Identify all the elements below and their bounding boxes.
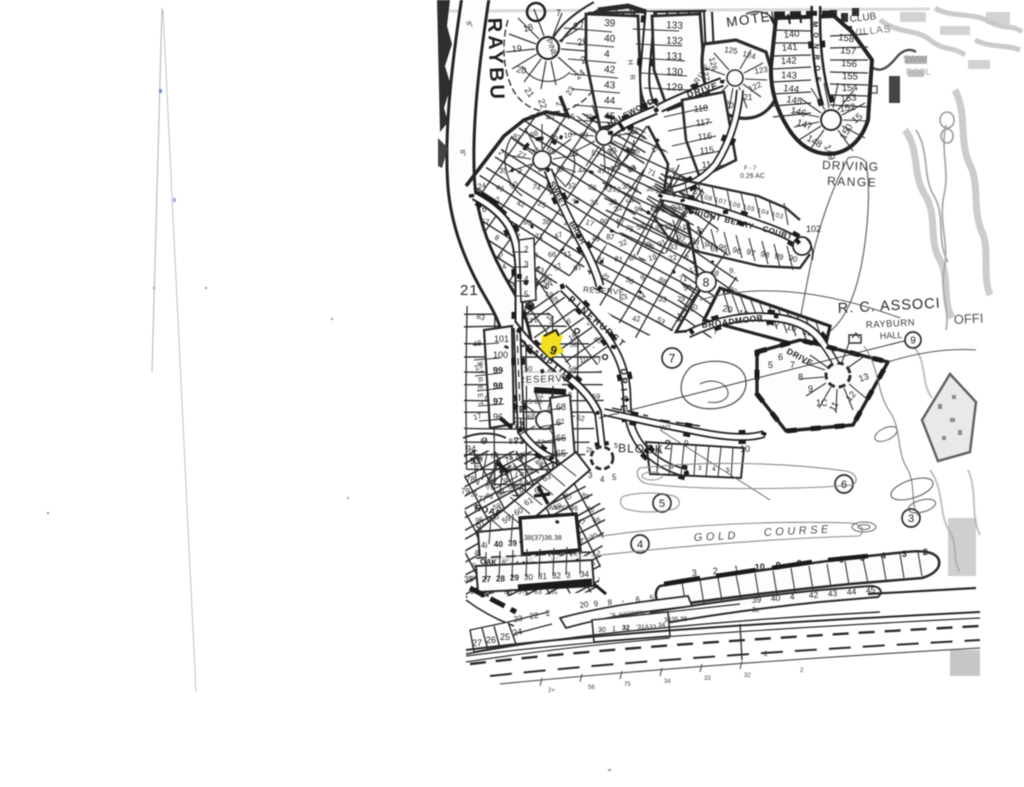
svg-text:9: 9 [482,436,487,446]
svg-text:F - 7: F - 7 [744,166,757,172]
svg-text:118: 118 [693,103,708,114]
svg-text:155: 155 [842,71,858,83]
svg-text:4: 4 [637,539,643,551]
svg-text:WATER: WATER [548,505,571,512]
svg-text:24: 24 [512,626,524,638]
svg-text:46: 46 [570,505,579,513]
svg-text:116: 116 [697,131,712,142]
svg-text:158: 158 [838,32,855,45]
svg-text:152: 152 [839,102,856,115]
svg-text:71: 71 [514,404,524,414]
svg-text:10: 10 [563,130,572,140]
svg-text:78: 78 [466,475,475,484]
svg-text:4: 4 [712,466,716,473]
svg-text:8: 8 [703,275,710,289]
svg-text:20: 20 [516,64,528,76]
svg-text:42: 42 [632,314,641,324]
svg-text:11: 11 [563,249,572,259]
svg-text:66: 66 [592,517,601,525]
svg-text:4: 4 [604,49,611,60]
svg-text:141: 141 [781,42,798,54]
svg-text:6: 6 [566,317,571,326]
svg-text:56: 56 [588,685,595,691]
svg-text:26: 26 [486,635,496,645]
svg-text:RANGE: RANGE [827,174,878,190]
svg-text:129: 129 [666,82,684,94]
svg-text:71: 71 [535,232,543,241]
svg-text:4: 4 [600,475,605,484]
svg-text:74: 74 [532,182,542,192]
svg-text:R: R [628,75,635,81]
svg-text:3: 3 [566,571,571,580]
svg-text:40: 40 [604,34,616,46]
svg-text:3e: 3e [752,607,760,614]
svg-text:34: 34 [580,570,589,579]
svg-text:34: 34 [664,679,671,685]
svg-text:142: 142 [781,55,797,67]
svg-text:44: 44 [578,166,587,175]
svg-text:125: 125 [724,45,739,56]
svg-text:68: 68 [556,402,566,412]
svg-text:60: 60 [490,452,499,460]
svg-text:98: 98 [493,381,503,391]
svg-text:5: 5 [768,360,773,370]
svg-text:38: 38 [542,217,551,226]
svg-text:36: 36 [590,198,599,207]
svg-text:30: 30 [524,573,533,582]
svg-text:96: 96 [634,204,644,214]
svg-text:144: 144 [783,83,800,96]
svg-text:76: 76 [486,483,495,492]
svg-text:RESERVE: RESERVE [518,373,571,386]
svg-text:6”: 6” [556,418,564,428]
svg-text:73: 73 [514,436,524,446]
svg-text:5: 5 [612,473,617,482]
svg-text:2+: 2+ [548,688,555,694]
svg-text:143: 143 [781,70,797,82]
svg-text:22: 22 [529,611,540,621]
svg-text:66: 66 [556,433,566,443]
svg-text:HALL: HALL [880,330,903,341]
svg-text:101: 101 [494,334,509,344]
svg-text:43: 43 [604,80,616,92]
svg-text:102: 102 [806,224,821,234]
svg-text:90: 90 [683,283,693,293]
svg-text:9: 9 [808,384,813,394]
svg-text:27: 27 [472,638,482,648]
svg-text:10: 10 [740,444,750,454]
svg-text:3: 3 [524,260,529,269]
svg-text:79: 79 [644,222,654,232]
svg-text:94: 94 [466,444,476,454]
svg-text:33: 33 [658,294,668,304]
svg-text:79: 79 [461,487,470,496]
svg-text:81: 81 [614,254,624,264]
svg-text:2: 2 [922,547,928,557]
svg-text:75: 75 [624,682,631,688]
svg-text:M: M [811,21,818,28]
svg-text:100: 100 [493,350,508,360]
svg-text:40: 40 [494,540,503,549]
svg-text:42: 42 [604,65,616,77]
svg-text:H: H [626,60,633,66]
svg-text:62: 62 [576,413,586,423]
svg-text:20: 20 [722,303,734,315]
svg-text:66: 66 [548,250,556,259]
svg-text:20: 20 [579,600,590,610]
svg-text:50: 50 [524,364,533,373]
svg-text:2: 2 [664,437,672,452]
svg-text:24: 24 [477,181,487,191]
svg-text:156: 156 [841,58,858,70]
svg-text:3: 3 [901,549,907,559]
svg-text:1C: 1C [816,398,828,408]
svg-text:4i: 4i [481,541,487,550]
svg-text:73: 73 [475,465,483,473]
svg-text:4: 4 [880,551,886,561]
svg-text:2: 2 [764,651,768,658]
svg-text:POOL: POOL [906,67,931,77]
svg-text:90: 90 [600,217,608,226]
svg-text:3: 3 [908,513,914,525]
svg-text:6: 6 [841,479,847,491]
svg-text:SWIM: SWIM [903,54,928,64]
svg-text:140: 140 [783,28,800,41]
svg-text:8: 8 [798,372,803,382]
svg-text:75: 75 [514,468,524,478]
svg-text:33: 33 [704,676,711,682]
svg-text:19: 19 [545,291,554,299]
svg-text:36: 36 [646,184,655,193]
svg-text:22: 22 [668,253,678,263]
svg-text:6: 6 [482,205,487,214]
svg-text:157: 157 [840,45,857,58]
svg-text:77: 77 [478,495,487,504]
svg-text:25: 25 [500,632,510,642]
svg-text:43: 43 [827,588,837,599]
svg-text:OFFI: OFFI [953,310,983,327]
svg-text:5: 5 [659,498,665,510]
svg-text:93: 93 [470,456,480,466]
svg-text:28: 28 [496,574,505,583]
svg-text:35: 35 [464,575,473,584]
svg-text:38(37)36.38: 38(37)36.38 [524,535,562,542]
svg-text:31: 31 [538,572,547,581]
svg-text:27: 27 [482,575,491,584]
svg-text:2r: 2r [586,447,593,454]
svg-text:115: 115 [699,145,714,156]
svg-text:117: 117 [695,117,710,128]
svg-text:N: N [812,43,819,49]
svg-text:E: E [814,76,821,82]
svg-text:133: 133 [666,20,684,32]
svg-text:21: 21 [460,282,479,299]
svg-text:44: 44 [604,96,616,108]
svg-text:6: 6 [778,352,783,362]
svg-text:23: 23 [513,614,524,624]
svg-text:19: 19 [511,43,522,54]
svg-text:DRIVING: DRIVING [822,158,879,174]
svg-text:32: 32 [552,572,561,581]
svg-text:42: 42 [808,590,818,601]
svg-text:2: 2 [524,245,529,254]
svg-text:GOLD: GOLD [694,530,740,544]
svg-text:7: 7 [669,351,676,365]
svg-text:97: 97 [493,397,503,407]
svg-text:39: 39 [508,539,517,548]
svg-text:130: 130 [666,67,684,79]
svg-text:32: 32 [744,673,751,679]
svg-text:40: 40 [770,593,780,604]
svg-text:30: 30 [598,627,606,634]
svg-text:39: 39 [604,18,616,30]
svg-text:99: 99 [493,366,503,376]
svg-text:9: 9 [910,336,916,347]
svg-text:3: 3 [698,465,702,472]
svg-text:131: 131 [666,51,684,63]
svg-text:132: 132 [666,36,684,48]
svg-text:56: 56 [646,242,654,251]
svg-text:R: R [813,54,820,60]
svg-text:7: 7 [556,8,561,18]
svg-text:44: 44 [846,586,856,597]
svg-text:39: 39 [751,594,761,605]
svg-text:0.26 AC: 0.26 AC [740,173,765,180]
svg-text:5: 5 [524,290,529,299]
svg-text:3435 36: 3435 36 [664,616,688,624]
svg-text:29: 29 [510,574,519,583]
